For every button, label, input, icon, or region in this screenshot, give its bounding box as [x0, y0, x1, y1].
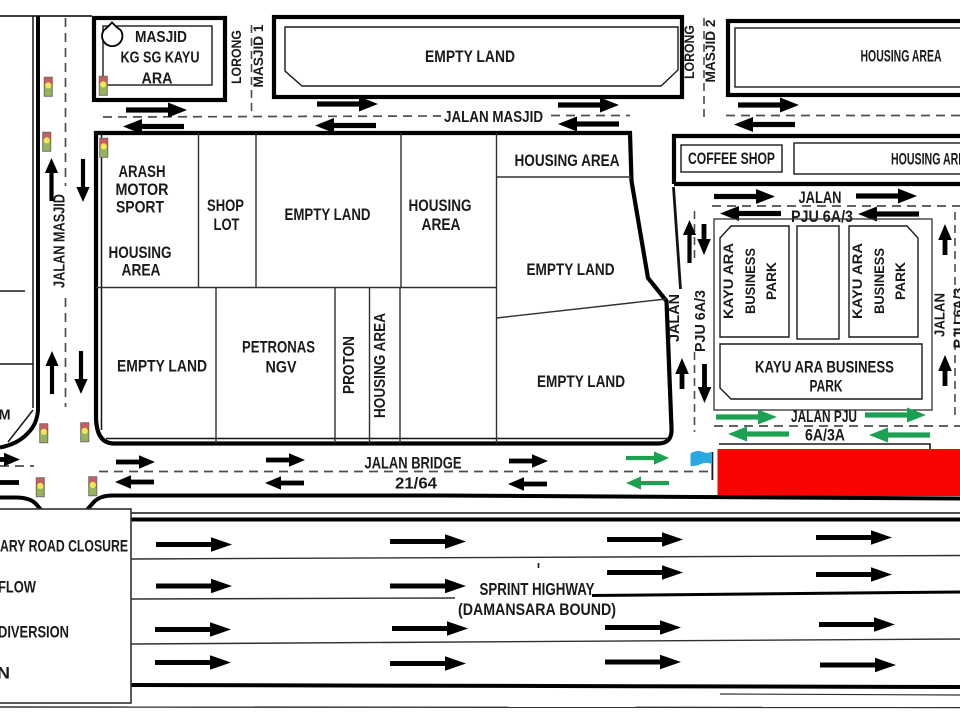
- svg-text:PJU 6A/3: PJU 6A/3: [950, 287, 960, 348]
- svg-text:KG SG KAYU: KG SG KAYU: [121, 50, 200, 67]
- svg-text:BUSINESS: BUSINESS: [743, 248, 758, 314]
- svg-text:HOUSING AREA: HOUSING AREA: [891, 151, 960, 169]
- svg-text:JALAN MASJID: JALAN MASJID: [52, 194, 69, 288]
- svg-text:ARY ROAD CLOSURE: ARY ROAD CLOSURE: [0, 538, 128, 556]
- svg-text:EMPTY LAND: EMPTY LAND: [117, 357, 207, 376]
- svg-text:DIVERSION: DIVERSION: [0, 624, 69, 642]
- svg-text:EMPTY LAND: EMPTY LAND: [537, 372, 625, 391]
- svg-text:JALAN: JALAN: [799, 189, 842, 207]
- svg-text:PJU 6A/3: PJU 6A/3: [693, 290, 709, 352]
- svg-text:HOUSING AREA: HOUSING AREA: [372, 313, 389, 418]
- svg-text:COFFEE SHOP: COFFEE SHOP: [688, 150, 775, 168]
- svg-text:JALAN PJU: JALAN PJU: [791, 408, 857, 426]
- svg-text:PARK: PARK: [893, 262, 908, 300]
- svg-text:PARK: PARK: [810, 377, 843, 396]
- svg-text:JALAN: JALAN: [933, 293, 949, 337]
- svg-text:JALAN: JALAN: [667, 294, 683, 342]
- svg-text:SPORT: SPORT: [116, 198, 165, 217]
- svg-text:SPRINT HIGHWAY: SPRINT HIGHWAY: [480, 579, 595, 599]
- svg-text:MASJID 2: MASJID 2: [703, 20, 718, 83]
- svg-text:AREA: AREA: [422, 215, 461, 234]
- svg-text:PETRONAS: PETRONAS: [242, 338, 315, 357]
- svg-text:LORONG: LORONG: [229, 30, 244, 84]
- svg-text:M: M: [0, 408, 11, 424]
- svg-text:KAYU ARA BUSINESS: KAYU ARA BUSINESS: [755, 358, 894, 377]
- svg-text:MASJID: MASJID: [135, 29, 187, 46]
- svg-text:LOT: LOT: [214, 215, 240, 234]
- svg-text:EMPTY LAND: EMPTY LAND: [527, 260, 615, 279]
- svg-text:NGV: NGV: [266, 358, 298, 377]
- svg-text:MASJID 1: MASJID 1: [251, 24, 266, 87]
- svg-text:FLOW: FLOW: [0, 579, 36, 597]
- svg-text:HOUSING AREA: HOUSING AREA: [861, 47, 942, 66]
- svg-text:PJU 6A/3: PJU 6A/3: [791, 208, 853, 226]
- svg-text:HOUSING: HOUSING: [409, 196, 472, 215]
- svg-text:6A/3A: 6A/3A: [805, 427, 845, 445]
- svg-text:ARASH: ARASH: [119, 162, 166, 181]
- svg-text:N: N: [0, 665, 10, 683]
- svg-text:(DAMANSARA BOUND): (DAMANSARA BOUND): [458, 600, 616, 619]
- svg-text:BUSINESS: BUSINESS: [872, 248, 887, 314]
- svg-text:JALAN MASJID: JALAN MASJID: [444, 109, 543, 126]
- svg-text:HOUSING AREA: HOUSING AREA: [515, 151, 620, 170]
- svg-text:PARK: PARK: [764, 262, 779, 300]
- svg-text:KAYU ARA: KAYU ARA: [721, 243, 736, 319]
- svg-text:HOUSING: HOUSING: [109, 243, 172, 262]
- svg-text:PROTON: PROTON: [341, 336, 358, 394]
- svg-text:EMPTY LAND: EMPTY LAND: [285, 205, 371, 224]
- svg-text:KAYU ARA: KAYU ARA: [850, 243, 865, 319]
- svg-text:EMPTY LAND: EMPTY LAND: [425, 47, 515, 66]
- svg-text:ARA: ARA: [142, 71, 173, 88]
- svg-text:21/64: 21/64: [395, 476, 437, 493]
- svg-text:SHOP: SHOP: [207, 196, 244, 215]
- svg-text:MOTOR: MOTOR: [116, 180, 169, 199]
- svg-text:JALAN BRIDGE: JALAN BRIDGE: [365, 455, 462, 473]
- svg-text:LORONG: LORONG: [682, 25, 697, 79]
- svg-text:AREA: AREA: [122, 261, 161, 280]
